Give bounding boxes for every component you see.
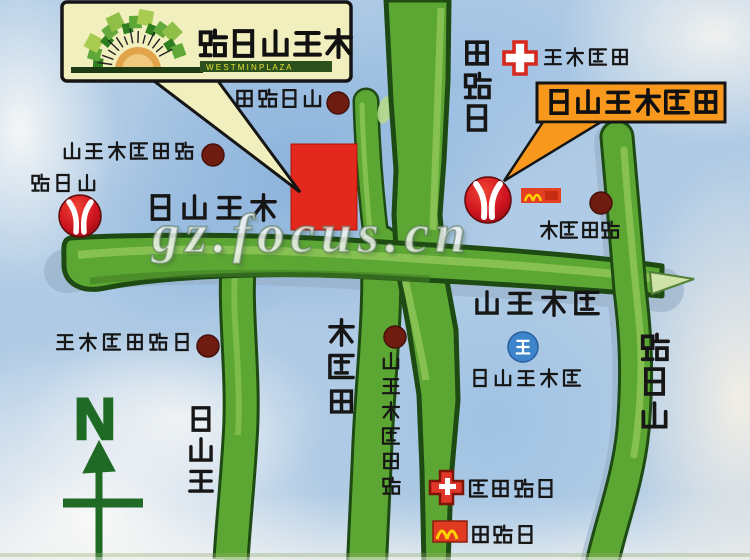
svg-text:W E S T M I N P L A Z A: W E S T M I N P L A Z A [206,63,292,72]
